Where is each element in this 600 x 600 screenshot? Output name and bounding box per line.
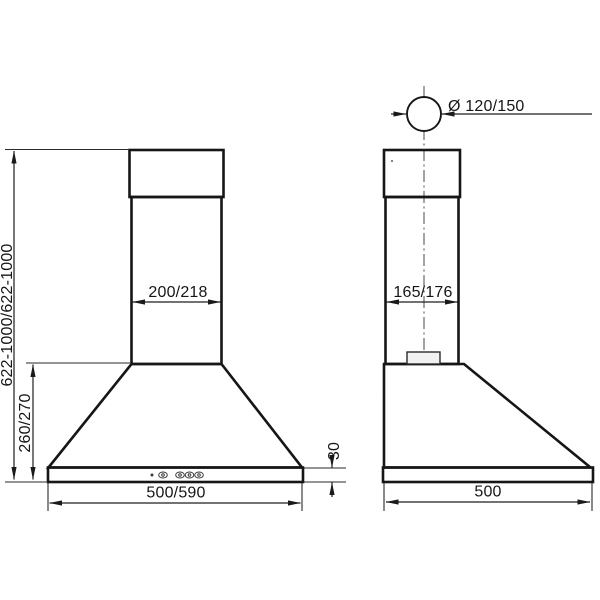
front-view: [48, 150, 303, 482]
front-chimney-duct-cover: [132, 197, 222, 364]
duct-outlet-circle: [407, 97, 441, 131]
side-chimney-duct-cover: [386, 197, 459, 364]
dimension-drawing: Ø 120/150 622-1000/622-1000 260/270 200/…: [0, 0, 600, 600]
drawing-canvas: Ø 120/150 622-1000/622-1000 260/270 200/…: [0, 0, 600, 600]
dimension-lines: [14, 114, 592, 503]
body-height-label: 260/270: [17, 393, 34, 452]
overall-width-label: 500/590: [146, 485, 205, 502]
speed-button-1-icon: [176, 472, 185, 478]
print-speck: [391, 160, 393, 162]
speed-button-3-dot-icon: [198, 474, 201, 477]
indicator-light-icon: [151, 474, 154, 477]
light-button-icon: [159, 472, 168, 478]
dimension-labels: Ø 120/150 622-1000/622-1000 260/270 200/…: [0, 98, 525, 502]
duct-diameter-label: Ø 120/150: [448, 98, 525, 115]
speed-button-2-icon: [185, 472, 194, 478]
damper-flap-detail: [407, 352, 440, 364]
base-height-label: 30: [326, 442, 343, 460]
side-base-panel: [383, 468, 593, 483]
speed-button-1-dot-icon: [179, 474, 182, 477]
speed-button-3-icon: [195, 472, 204, 478]
control-buttons: [151, 472, 204, 478]
side-hood-canopy: [384, 364, 591, 468]
chimney-width-label: 200/218: [148, 284, 207, 301]
light-button-dot-icon: [162, 474, 165, 477]
front-hood-canopy: [49, 364, 303, 468]
front-chimney-top-cap: [130, 150, 224, 197]
speed-button-2-dot-icon: [188, 474, 191, 477]
overall-height-label: 622-1000/622-1000: [0, 243, 16, 386]
overall-depth-label: 500: [474, 484, 501, 501]
chimney-depth-label: 165/176: [393, 284, 452, 301]
extension-lines: [5, 150, 592, 512]
side-chimney-top-cap: [384, 150, 460, 197]
